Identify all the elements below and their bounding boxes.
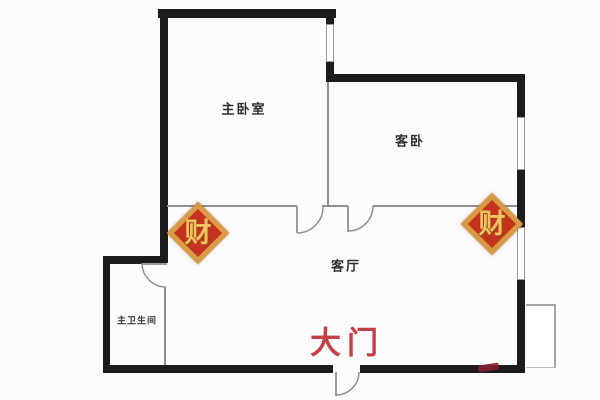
wall-master-top (158, 9, 336, 18)
wealth-charm-icon-left: 财 (167, 202, 229, 264)
label-guest-bedroom: 客卧 (395, 131, 425, 150)
door-leaf-guest-bedroom (347, 206, 349, 232)
wall-right-upper (517, 74, 525, 118)
window-guest-bedroom (517, 117, 525, 170)
label-living-room: 客厅 (331, 256, 361, 275)
door-arc-master-bedroom (297, 207, 323, 233)
window-master-bedroom (326, 24, 334, 62)
wall-left (160, 9, 168, 263)
wall-right-lower (517, 279, 525, 372)
wall-bottom-left (103, 365, 333, 373)
label-master-bedroom: 主卧室 (221, 99, 266, 118)
door-leaf-bathroom (142, 263, 167, 265)
door-arc-bathroom (142, 263, 166, 287)
wall-master-right-upper (326, 9, 334, 25)
wall-bathroom-left (103, 256, 110, 372)
door-arcs-layer (0, 0, 600, 400)
floor-plan: 财 财 主卧室 客卧 客厅 主卫生间 大门 (0, 0, 600, 400)
entry-open-door-panel (526, 304, 556, 368)
wealth-charm-glyph: 财 (185, 220, 212, 247)
wall-bottom-right (360, 365, 525, 373)
wall-guest-top (326, 74, 524, 82)
interior-wall-bedroom-divider (327, 82, 329, 207)
interior-wall-living-left (167, 205, 297, 207)
interior-wall-bathroom-right (164, 287, 166, 365)
interior-wall-living-mid (322, 205, 348, 207)
wealth-charm-glyph: 财 (479, 211, 506, 238)
window-living-room (517, 227, 525, 280)
door-arc-guest-bedroom (348, 206, 373, 231)
door-arc-entrance (336, 372, 359, 395)
door-leaf-entrance (335, 372, 337, 396)
label-master-bathroom: 主卫生间 (117, 314, 157, 327)
wealth-charm-icon-right: 财 (461, 193, 523, 255)
door-leaf-master-bedroom (296, 206, 298, 233)
label-entrance: 大门 (310, 318, 384, 363)
